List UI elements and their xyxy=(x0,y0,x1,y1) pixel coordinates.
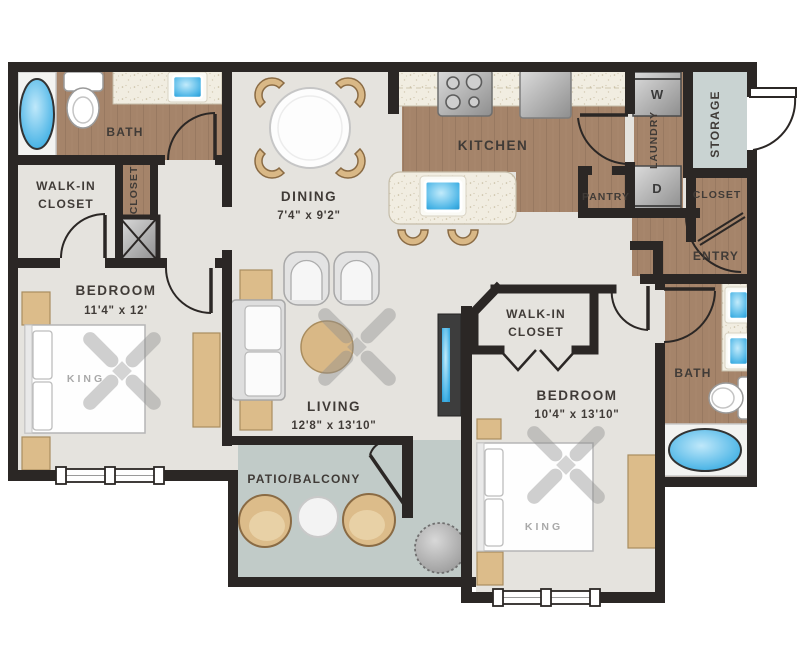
bedroom2-dims: 10'4" x 13'10" xyxy=(534,409,619,421)
dresser-2 xyxy=(628,455,657,548)
dryer-label: D xyxy=(652,181,661,196)
bathtub-1 xyxy=(18,72,56,157)
kitchen-label: KITCHEN xyxy=(458,138,529,153)
washer-label: W xyxy=(651,87,664,102)
patio-chair-b xyxy=(343,494,395,546)
dining-table xyxy=(270,88,350,168)
bathtub-2 xyxy=(663,424,749,476)
storage-label: STORAGE xyxy=(708,90,722,158)
floor-plan-svg: BATH WALK-IN CLOSET CLOSET BEDROOM 11'4"… xyxy=(0,0,800,668)
dining-dims: 7'4" x 9'2" xyxy=(277,210,341,222)
laundry-label: LAUNDRY xyxy=(648,111,660,169)
bedroom2-label: BEDROOM xyxy=(537,388,618,403)
dining-label: DINING xyxy=(281,189,337,204)
window-bedroom2 xyxy=(493,589,600,606)
end-table-b xyxy=(240,400,272,430)
bath2-label: BATH xyxy=(674,366,711,380)
sofa xyxy=(231,300,285,400)
dresser-1 xyxy=(193,333,220,427)
mechanical-chase xyxy=(119,217,158,261)
end-table-a xyxy=(240,270,272,300)
bed2-king-label: KING xyxy=(525,521,563,533)
nightstand-1b xyxy=(22,437,50,470)
island-sink xyxy=(420,176,466,216)
nightstand-2a xyxy=(477,419,501,439)
patio-label: PATIO/BALCONY xyxy=(247,472,360,486)
walkin1-label-line2: CLOSET xyxy=(38,197,94,211)
stove xyxy=(438,69,492,116)
armchair-b xyxy=(334,252,379,305)
bedroom1-dims: 11'4" x 12' xyxy=(84,305,148,317)
bedroom1-label: BEDROOM xyxy=(76,283,157,298)
kitchen-counter xyxy=(396,69,627,106)
pantry-label: PANTRY xyxy=(582,191,630,203)
walkin2-label-line1: WALK-IN xyxy=(506,307,566,321)
patio-grill xyxy=(415,523,465,573)
living-dims: 12'8" x 13'10" xyxy=(291,420,376,432)
window-bedroom1 xyxy=(56,467,164,484)
patio-chair-a xyxy=(239,495,291,547)
refrigerator xyxy=(520,70,571,118)
hall-closet-label: CLOSET xyxy=(128,166,140,215)
nightstand-2b xyxy=(477,552,503,585)
entry-closet-label: CLOSET xyxy=(693,189,742,201)
bed1-king-label: KING xyxy=(67,373,105,385)
floor-plan-page: BATH WALK-IN CLOSET CLOSET BEDROOM 11'4"… xyxy=(0,0,800,668)
nightstand-1a xyxy=(22,292,50,325)
tv xyxy=(438,314,461,416)
walkin2-label-line2: CLOSET xyxy=(508,325,564,339)
walkin1-label-line1: WALK-IN xyxy=(36,179,96,193)
bath1-label: BATH xyxy=(106,125,143,139)
armchair-a xyxy=(284,252,329,305)
living-label: LIVING xyxy=(307,399,361,414)
entry-label: ENTRY xyxy=(693,249,739,263)
vanity-sink-1 xyxy=(168,72,207,102)
patio-table xyxy=(298,497,338,537)
